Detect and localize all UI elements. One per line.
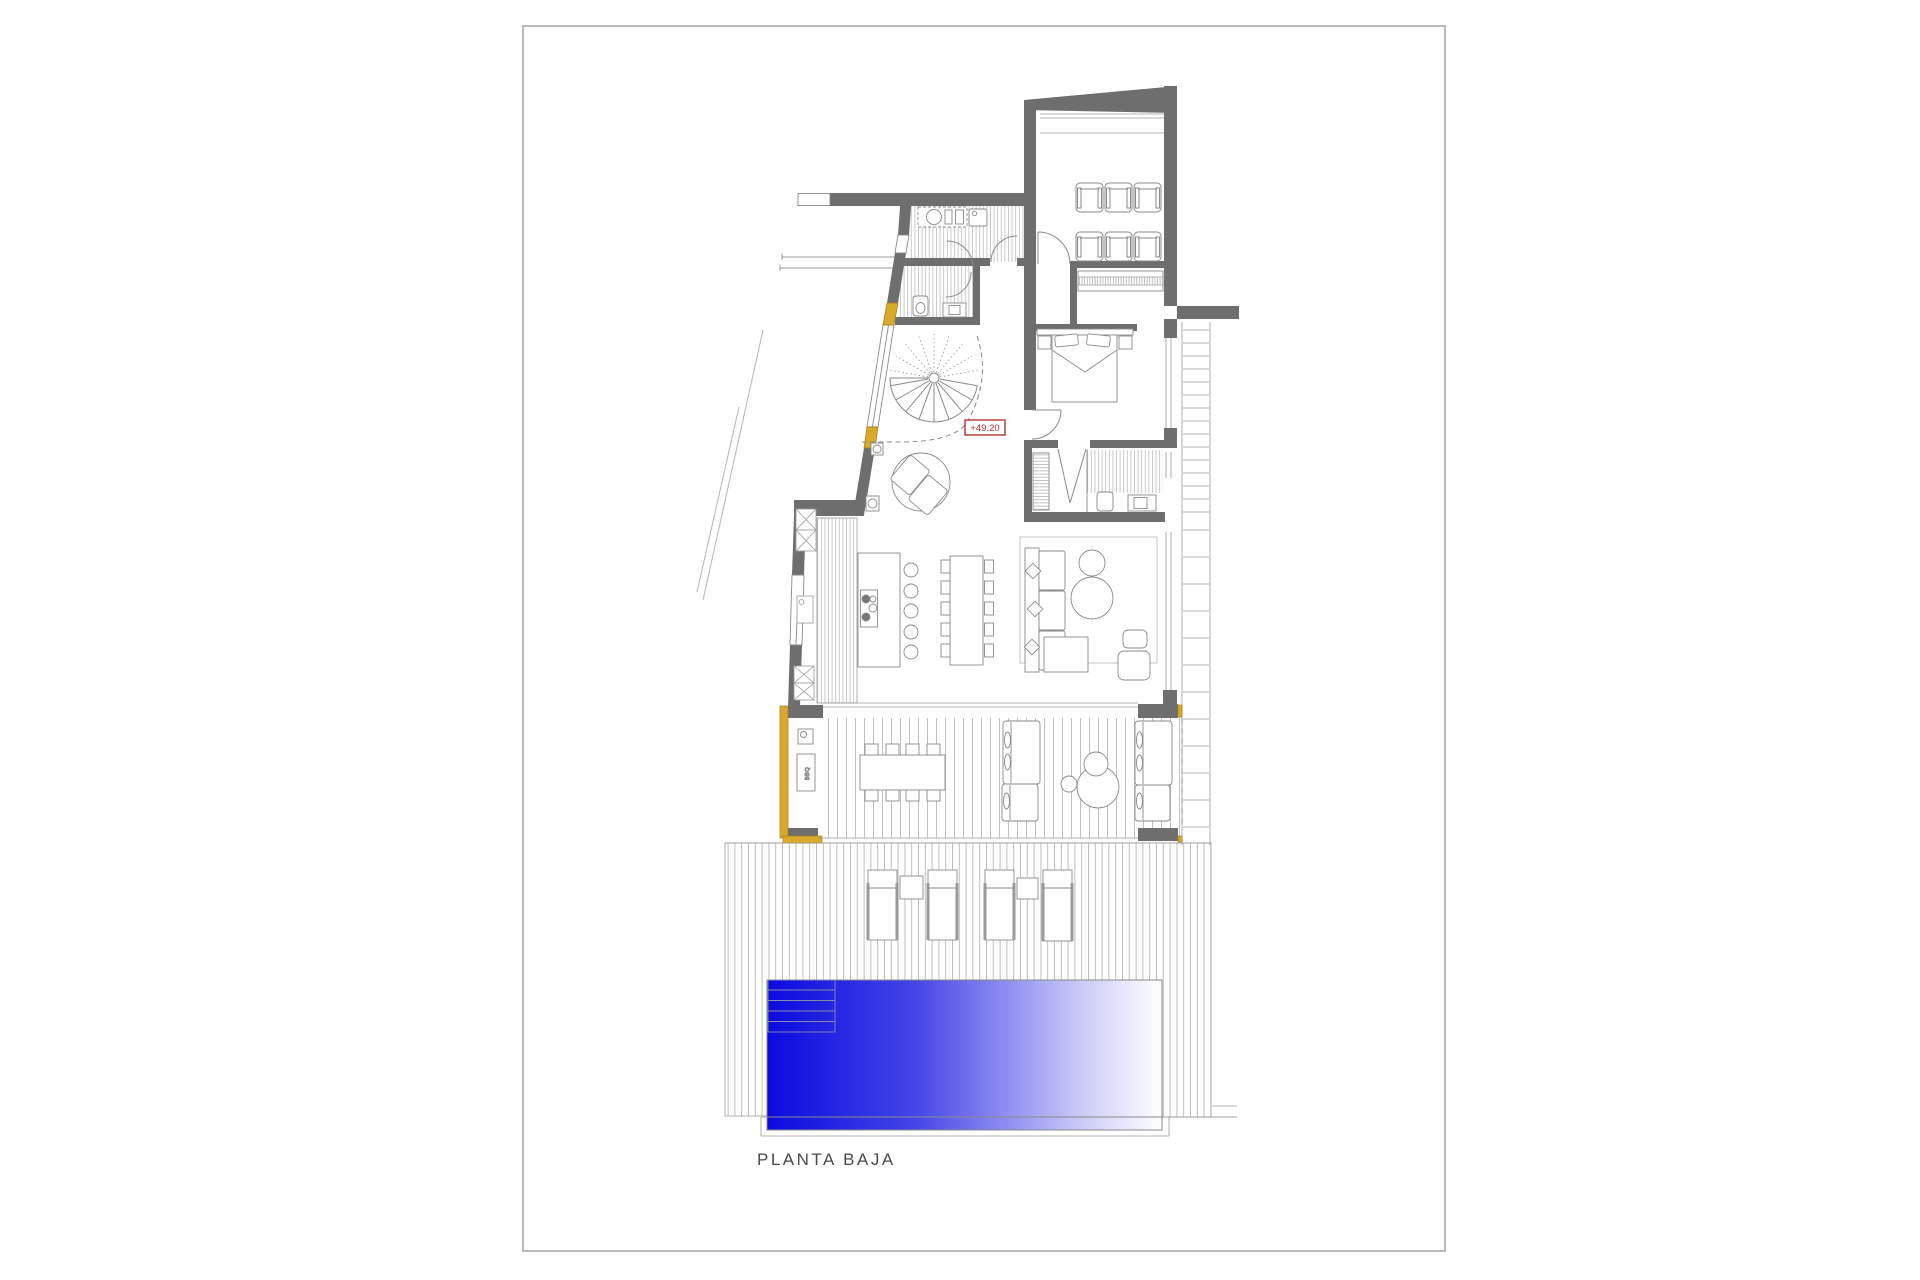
nightstand bbox=[1038, 336, 1051, 349]
wall-kitchen-south bbox=[1017, 258, 1024, 266]
bed-headboard bbox=[1037, 329, 1133, 335]
coffee-table bbox=[1079, 550, 1105, 576]
bbq-label: BBQ bbox=[805, 767, 811, 780]
x-column-block bbox=[796, 509, 816, 551]
cabinet-run-hatch bbox=[817, 518, 857, 703]
x-column-block bbox=[794, 666, 814, 700]
armchair bbox=[1118, 630, 1150, 680]
sink-drain-icon bbox=[972, 211, 976, 215]
wall-glass-stub-east bbox=[1138, 704, 1178, 718]
deck-side-table bbox=[900, 876, 923, 899]
burner-icon bbox=[870, 596, 876, 602]
pillow bbox=[1086, 334, 1110, 347]
bathroom-tile-hatch bbox=[1087, 450, 1163, 493]
outdoor-side-table bbox=[1061, 776, 1077, 792]
toilet-bowl bbox=[916, 303, 925, 314]
armchair bbox=[1134, 183, 1161, 212]
pillow bbox=[1055, 334, 1079, 347]
column-icon bbox=[873, 445, 881, 453]
wall-corner-east bbox=[1163, 690, 1177, 705]
outdoor-table bbox=[1084, 752, 1108, 776]
cooktop-icon bbox=[927, 210, 942, 225]
wall-lounge-south bbox=[1070, 261, 1177, 268]
wall-bedroom-south bbox=[1090, 440, 1164, 448]
toilet-icon bbox=[1097, 492, 1113, 511]
wall-stub-east bbox=[1177, 306, 1239, 319]
structural-columns bbox=[794, 509, 816, 700]
wall-glass-stub-west bbox=[788, 705, 823, 718]
outdoor-sofa-set bbox=[1135, 721, 1172, 821]
wardrobe bbox=[1078, 271, 1163, 291]
plan-title: PLANTA BAJA bbox=[757, 1150, 896, 1169]
ottoman bbox=[1044, 637, 1088, 672]
wall-wc-east bbox=[973, 266, 980, 317]
accent-terrace-step bbox=[783, 836, 822, 843]
pool-water bbox=[767, 980, 1162, 1130]
accent-corner bbox=[1178, 705, 1182, 717]
appliance-icon bbox=[945, 210, 952, 224]
kitchen-counter bbox=[918, 207, 987, 227]
wall-hall-east bbox=[1024, 103, 1036, 410]
accent-terrace-edge bbox=[780, 706, 788, 838]
accent-corner bbox=[1178, 836, 1182, 842]
level-marker: +49.20 bbox=[965, 420, 1005, 435]
wall-east bbox=[1164, 319, 1177, 338]
wall-east bbox=[1164, 428, 1177, 448]
burner-icon bbox=[862, 613, 870, 621]
basin-icon bbox=[949, 306, 960, 315]
wall-kitchen-south bbox=[899, 258, 990, 266]
armchair bbox=[1076, 232, 1103, 261]
wall-bath-south bbox=[1032, 512, 1165, 522]
column-icon bbox=[868, 499, 877, 508]
basin-icon bbox=[1134, 498, 1147, 509]
swimming-pool bbox=[767, 980, 1162, 1130]
wall-unit-knob bbox=[799, 600, 804, 605]
coffee-table bbox=[1071, 577, 1113, 619]
outdoor-dining-table bbox=[860, 755, 945, 790]
outdoor-sofa-set bbox=[1002, 721, 1040, 821]
lounger bbox=[927, 870, 959, 940]
burner-icon bbox=[869, 604, 877, 612]
wall-east-upper bbox=[1164, 86, 1177, 267]
armchair bbox=[1134, 232, 1161, 261]
window-kitchen bbox=[798, 194, 830, 206]
armchair bbox=[1105, 232, 1132, 261]
wall-wc-south bbox=[895, 317, 980, 325]
duct-shaft bbox=[1033, 453, 1049, 510]
wall-terrace-stub-east bbox=[1138, 828, 1178, 841]
floor-plan-svg: BBQ bbox=[0, 0, 1920, 1280]
floor-plan-sheet: BBQ bbox=[0, 0, 1920, 1280]
wall-kitchen-north bbox=[830, 193, 1026, 206]
armchair bbox=[1105, 183, 1132, 212]
window-diagonal-small bbox=[895, 235, 909, 253]
sink-icon bbox=[969, 209, 987, 226]
wall-bath-west bbox=[1024, 440, 1032, 522]
appliance-icon bbox=[956, 210, 964, 224]
lounger bbox=[984, 870, 1016, 940]
level-marker-text: +49.20 bbox=[970, 423, 999, 434]
bbq-sink-drain bbox=[801, 732, 807, 738]
wall-wardrobe-west bbox=[1070, 267, 1077, 325]
deck-side-table bbox=[1017, 878, 1038, 899]
lounger bbox=[1042, 870, 1074, 941]
armchair bbox=[1076, 183, 1103, 212]
dining-table bbox=[950, 556, 983, 665]
lounger bbox=[867, 870, 899, 940]
wall-east bbox=[1164, 267, 1177, 306]
burner-icon bbox=[862, 595, 870, 603]
nightstand bbox=[1119, 336, 1132, 349]
